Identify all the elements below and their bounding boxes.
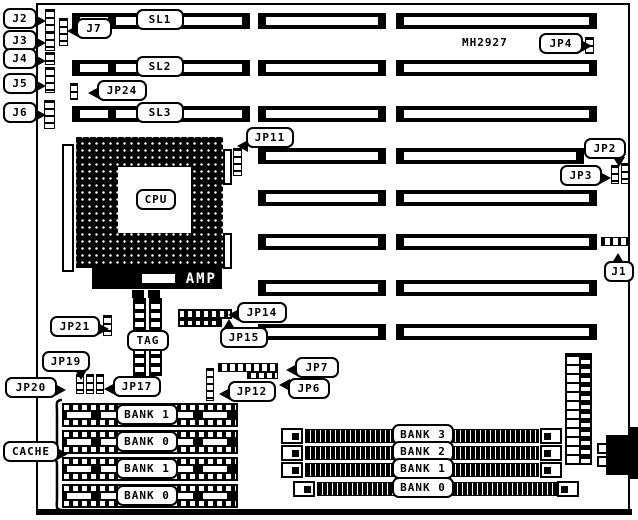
callout-jp19: JP19 xyxy=(42,351,90,372)
callout-jp12-pointer xyxy=(219,388,230,400)
callout-j2-pointer xyxy=(35,15,46,27)
simm-latch-hook xyxy=(292,450,299,457)
callout-j5: J5 xyxy=(3,73,37,94)
expansion-slot xyxy=(258,148,386,164)
slot-contact-strip xyxy=(266,194,378,202)
expansion-slot xyxy=(258,106,386,122)
callout-jp17: JP17 xyxy=(113,376,161,397)
simm-latch-left xyxy=(293,481,315,497)
callout-j7-pointer xyxy=(67,25,78,37)
slot-label-sl3: SL3 xyxy=(136,102,184,123)
power-connector xyxy=(565,353,592,465)
keyboard-connector-tab xyxy=(597,456,608,467)
jumper-jp17-c xyxy=(96,374,104,394)
cache-bank-label-0: BANK 1 xyxy=(116,404,178,425)
callout-tag: TAG xyxy=(127,330,169,351)
simm-latch-right xyxy=(540,462,562,478)
jumper-j2 xyxy=(45,9,55,32)
simm-bank-label-0-text: BANK 3 xyxy=(400,428,446,441)
simm-latch-hook xyxy=(544,450,551,457)
callout-j4: J4 xyxy=(3,48,37,69)
callout-jp20: JP20 xyxy=(5,377,57,398)
simm-bank-label-3-text: BANK 0 xyxy=(400,481,446,494)
slot-contact-strip xyxy=(404,238,589,246)
callout-jp6-text: JP6 xyxy=(298,382,321,395)
callout-j6-text: J6 xyxy=(12,106,27,119)
slot-contact-strip xyxy=(404,110,589,118)
callout-j1: J1 xyxy=(604,261,634,282)
board-bottom-edge xyxy=(36,509,632,515)
callout-jp4: JP4 xyxy=(539,33,583,54)
callout-j5-text: J5 xyxy=(12,77,27,90)
motherboard-diagram: AMP MH2927 J2J3J4J5J6J7JP24JP4JP11JP2JP3… xyxy=(0,0,638,520)
slot-contact-strip xyxy=(404,64,589,72)
socket-foot xyxy=(132,290,144,298)
callout-jp17-text: JP17 xyxy=(122,380,153,393)
simm-bank-label-1-text: BANK 2 xyxy=(400,445,446,458)
callout-j7-text: J7 xyxy=(86,22,101,35)
callout-jp7-pointer xyxy=(286,364,297,376)
slot-contact-strip xyxy=(266,328,378,336)
simm-latch-hook xyxy=(304,486,311,493)
simm-bank-label-2-text: BANK 1 xyxy=(400,462,446,475)
expansion-slot xyxy=(396,190,597,206)
simm-latch-left xyxy=(281,462,303,478)
callout-jp11-text: JP11 xyxy=(255,131,286,144)
amp-brand-label: AMP xyxy=(186,271,217,287)
callout-jp3-text: JP3 xyxy=(570,169,593,182)
callout-jp2-pointer xyxy=(613,157,625,167)
expansion-slot xyxy=(396,13,597,29)
callout-jp20-pointer xyxy=(55,384,66,396)
simm-latch-hook xyxy=(544,433,551,440)
callout-j4-pointer xyxy=(35,55,46,67)
jumper-j3 xyxy=(45,31,55,51)
expansion-slot xyxy=(396,280,597,296)
slot-label-sl3-text: SL3 xyxy=(149,106,172,119)
power-connector-pins-right xyxy=(581,355,590,463)
slot-contact-strip xyxy=(404,284,589,292)
slot-contact-strip xyxy=(404,328,589,336)
callout-jp6: JP6 xyxy=(288,378,330,399)
header-jp14-bottom xyxy=(178,319,222,327)
cache-bank-label-2: BANK 1 xyxy=(116,458,178,479)
callout-j2-text: J2 xyxy=(12,12,27,25)
slot-contact-strip xyxy=(266,64,378,72)
expansion-slot xyxy=(258,324,386,340)
callout-jp4-text: JP4 xyxy=(550,37,573,50)
callout-j1-text: J1 xyxy=(611,265,626,278)
expansion-slot xyxy=(396,106,597,122)
callout-tag-text: TAG xyxy=(137,334,160,347)
slot-contact-strip xyxy=(266,284,378,292)
expansion-slot xyxy=(396,148,584,164)
expansion-slot xyxy=(258,280,386,296)
callout-jp14: JP14 xyxy=(237,302,287,323)
expansion-slot xyxy=(396,234,597,250)
cache-bank-label-0-text: BANK 1 xyxy=(124,408,170,421)
header-jp14-top xyxy=(178,309,232,319)
callout-jp7: JP7 xyxy=(295,357,339,378)
callout-j5-pointer xyxy=(35,80,46,92)
callout-jp21-text: JP21 xyxy=(60,320,91,333)
callout-jp19-pointer xyxy=(75,370,87,380)
header-jp6 xyxy=(247,372,278,379)
connector-j1 xyxy=(601,237,628,246)
simm-latch-right xyxy=(540,428,562,444)
keyboard-connector xyxy=(606,435,630,475)
cache-bank-label-3: BANK 0 xyxy=(116,485,178,506)
callout-cpu-text: CPU xyxy=(145,193,168,206)
callout-j2: J2 xyxy=(3,8,37,29)
callout-jp15: JP15 xyxy=(220,327,268,348)
slot-contact-strip xyxy=(266,152,378,160)
simm-latch-right xyxy=(557,481,579,497)
header-jp7 xyxy=(218,363,278,372)
slot-contact-strip xyxy=(404,17,589,25)
power-connector-pins-left xyxy=(567,355,581,463)
jumper-jp11 xyxy=(233,148,242,176)
slot-label-sl1-text: SL1 xyxy=(149,13,172,26)
callout-jp11-pointer xyxy=(237,140,248,152)
callout-jp2: JP2 xyxy=(584,138,626,159)
slot-contact-strip xyxy=(266,238,378,246)
jumper-jp17-b xyxy=(86,374,94,394)
callout-jp14-text: JP14 xyxy=(247,306,278,319)
callout-jp12-text: JP12 xyxy=(237,385,268,398)
slot-label-sl2: SL2 xyxy=(136,56,184,77)
socket-tab xyxy=(223,149,232,185)
zif-lever xyxy=(62,144,74,272)
part-number: MH2927 xyxy=(462,36,508,49)
slot-contact-strip xyxy=(80,110,108,118)
amp-socket-window xyxy=(142,274,175,283)
cache-bank-label-1-text: BANK 0 xyxy=(124,435,170,448)
callout-jp7-text: JP7 xyxy=(306,361,329,374)
callout-cache: CACHE xyxy=(3,441,59,462)
amp-socket-bar: AMP xyxy=(92,268,222,289)
keyboard-connector xyxy=(628,427,638,479)
callout-jp15-text: JP15 xyxy=(229,331,260,344)
slot-contact-strip xyxy=(266,17,378,25)
expansion-slot xyxy=(258,60,386,76)
callout-cpu: CPU xyxy=(136,189,176,210)
simm-latch-left xyxy=(281,445,303,461)
callout-jp3: JP3 xyxy=(560,165,602,186)
expansion-slot xyxy=(258,234,386,250)
slot-label-sl1: SL1 xyxy=(136,9,184,30)
callout-jp6-pointer xyxy=(279,379,290,391)
expansion-slot xyxy=(258,13,386,29)
callout-jp15-pointer xyxy=(223,319,235,329)
callout-j6: J6 xyxy=(3,102,37,123)
slot-contact-strip xyxy=(404,152,576,160)
expansion-slot xyxy=(396,324,597,340)
cache-bank-label-3-text: BANK 0 xyxy=(124,489,170,502)
callout-j3-text: J3 xyxy=(12,34,27,47)
callout-j3-pointer xyxy=(35,37,46,49)
socket-foot xyxy=(148,290,160,298)
cache-bank-label-1: BANK 0 xyxy=(116,431,178,452)
simm-latch-hook xyxy=(292,467,299,474)
jumper-jp12 xyxy=(206,368,214,401)
slot-contact-strip xyxy=(80,64,108,72)
callout-j1-pointer xyxy=(612,253,624,263)
keyboard-connector-tab xyxy=(597,443,608,454)
cache-bank-label-2-text: BANK 1 xyxy=(124,462,170,475)
callout-jp21-pointer xyxy=(98,323,109,335)
slot-contact-strip xyxy=(266,110,378,118)
simm-bank-label-3: BANK 0 xyxy=(392,477,454,498)
expansion-slot xyxy=(396,60,597,76)
callout-jp12: JP12 xyxy=(228,381,276,402)
socket-tab xyxy=(223,233,232,269)
slot-contact-strip xyxy=(404,194,589,202)
callout-j4-text: J4 xyxy=(12,52,27,65)
expansion-slot xyxy=(258,190,386,206)
callout-jp21: JP21 xyxy=(50,316,100,337)
jumper-j4 xyxy=(45,52,55,65)
callout-jp2-text: JP2 xyxy=(594,142,617,155)
simm-latch-hook xyxy=(292,433,299,440)
callout-jp24-text: JP24 xyxy=(107,84,138,97)
jumper-jp24 xyxy=(70,83,78,100)
simm-bank-label-2: BANK 1 xyxy=(392,458,454,479)
callout-jp24-pointer xyxy=(88,87,99,99)
simm-latch-hook xyxy=(561,486,568,493)
callout-jp19-text: JP19 xyxy=(51,355,82,368)
callout-cache-text: CACHE xyxy=(12,445,50,458)
slot-label-sl2-text: SL2 xyxy=(149,60,172,73)
callout-cache-pointer xyxy=(57,448,68,460)
simm-latch-left xyxy=(281,428,303,444)
callout-jp11: JP11 xyxy=(246,127,294,148)
callout-jp4-pointer xyxy=(581,40,592,52)
callout-jp20-text: JP20 xyxy=(16,381,47,394)
jumper-j5 xyxy=(45,67,55,93)
callout-j7: J7 xyxy=(76,18,112,39)
simm-latch-right xyxy=(540,445,562,461)
simm-latch-hook xyxy=(544,467,551,474)
callout-j6-pointer xyxy=(35,109,46,121)
jumper-jp2-a xyxy=(611,165,619,184)
callout-jp3-pointer xyxy=(600,172,611,184)
callout-jp17-pointer xyxy=(104,383,115,395)
callout-jp24: JP24 xyxy=(97,80,147,101)
